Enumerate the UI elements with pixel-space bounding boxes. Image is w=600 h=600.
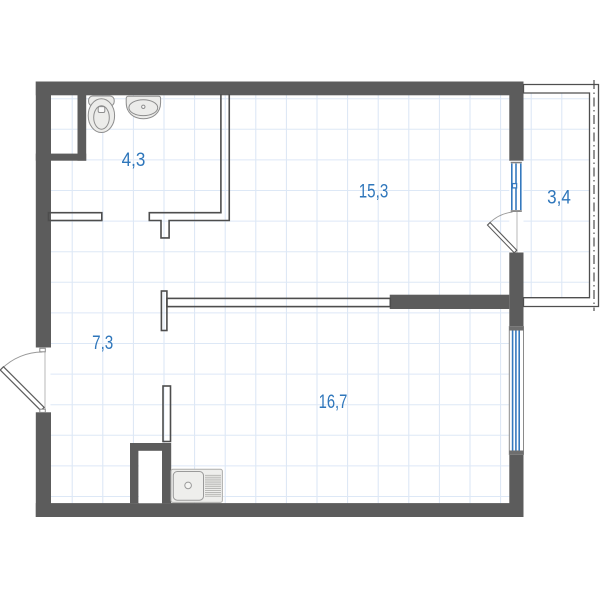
svg-text:3,4: 3,4	[547, 187, 571, 208]
svg-text:4,3: 4,3	[122, 150, 146, 171]
svg-text:16,7: 16,7	[319, 392, 348, 413]
svg-text:15,3: 15,3	[359, 182, 389, 203]
svg-text:7,3: 7,3	[92, 333, 113, 354]
